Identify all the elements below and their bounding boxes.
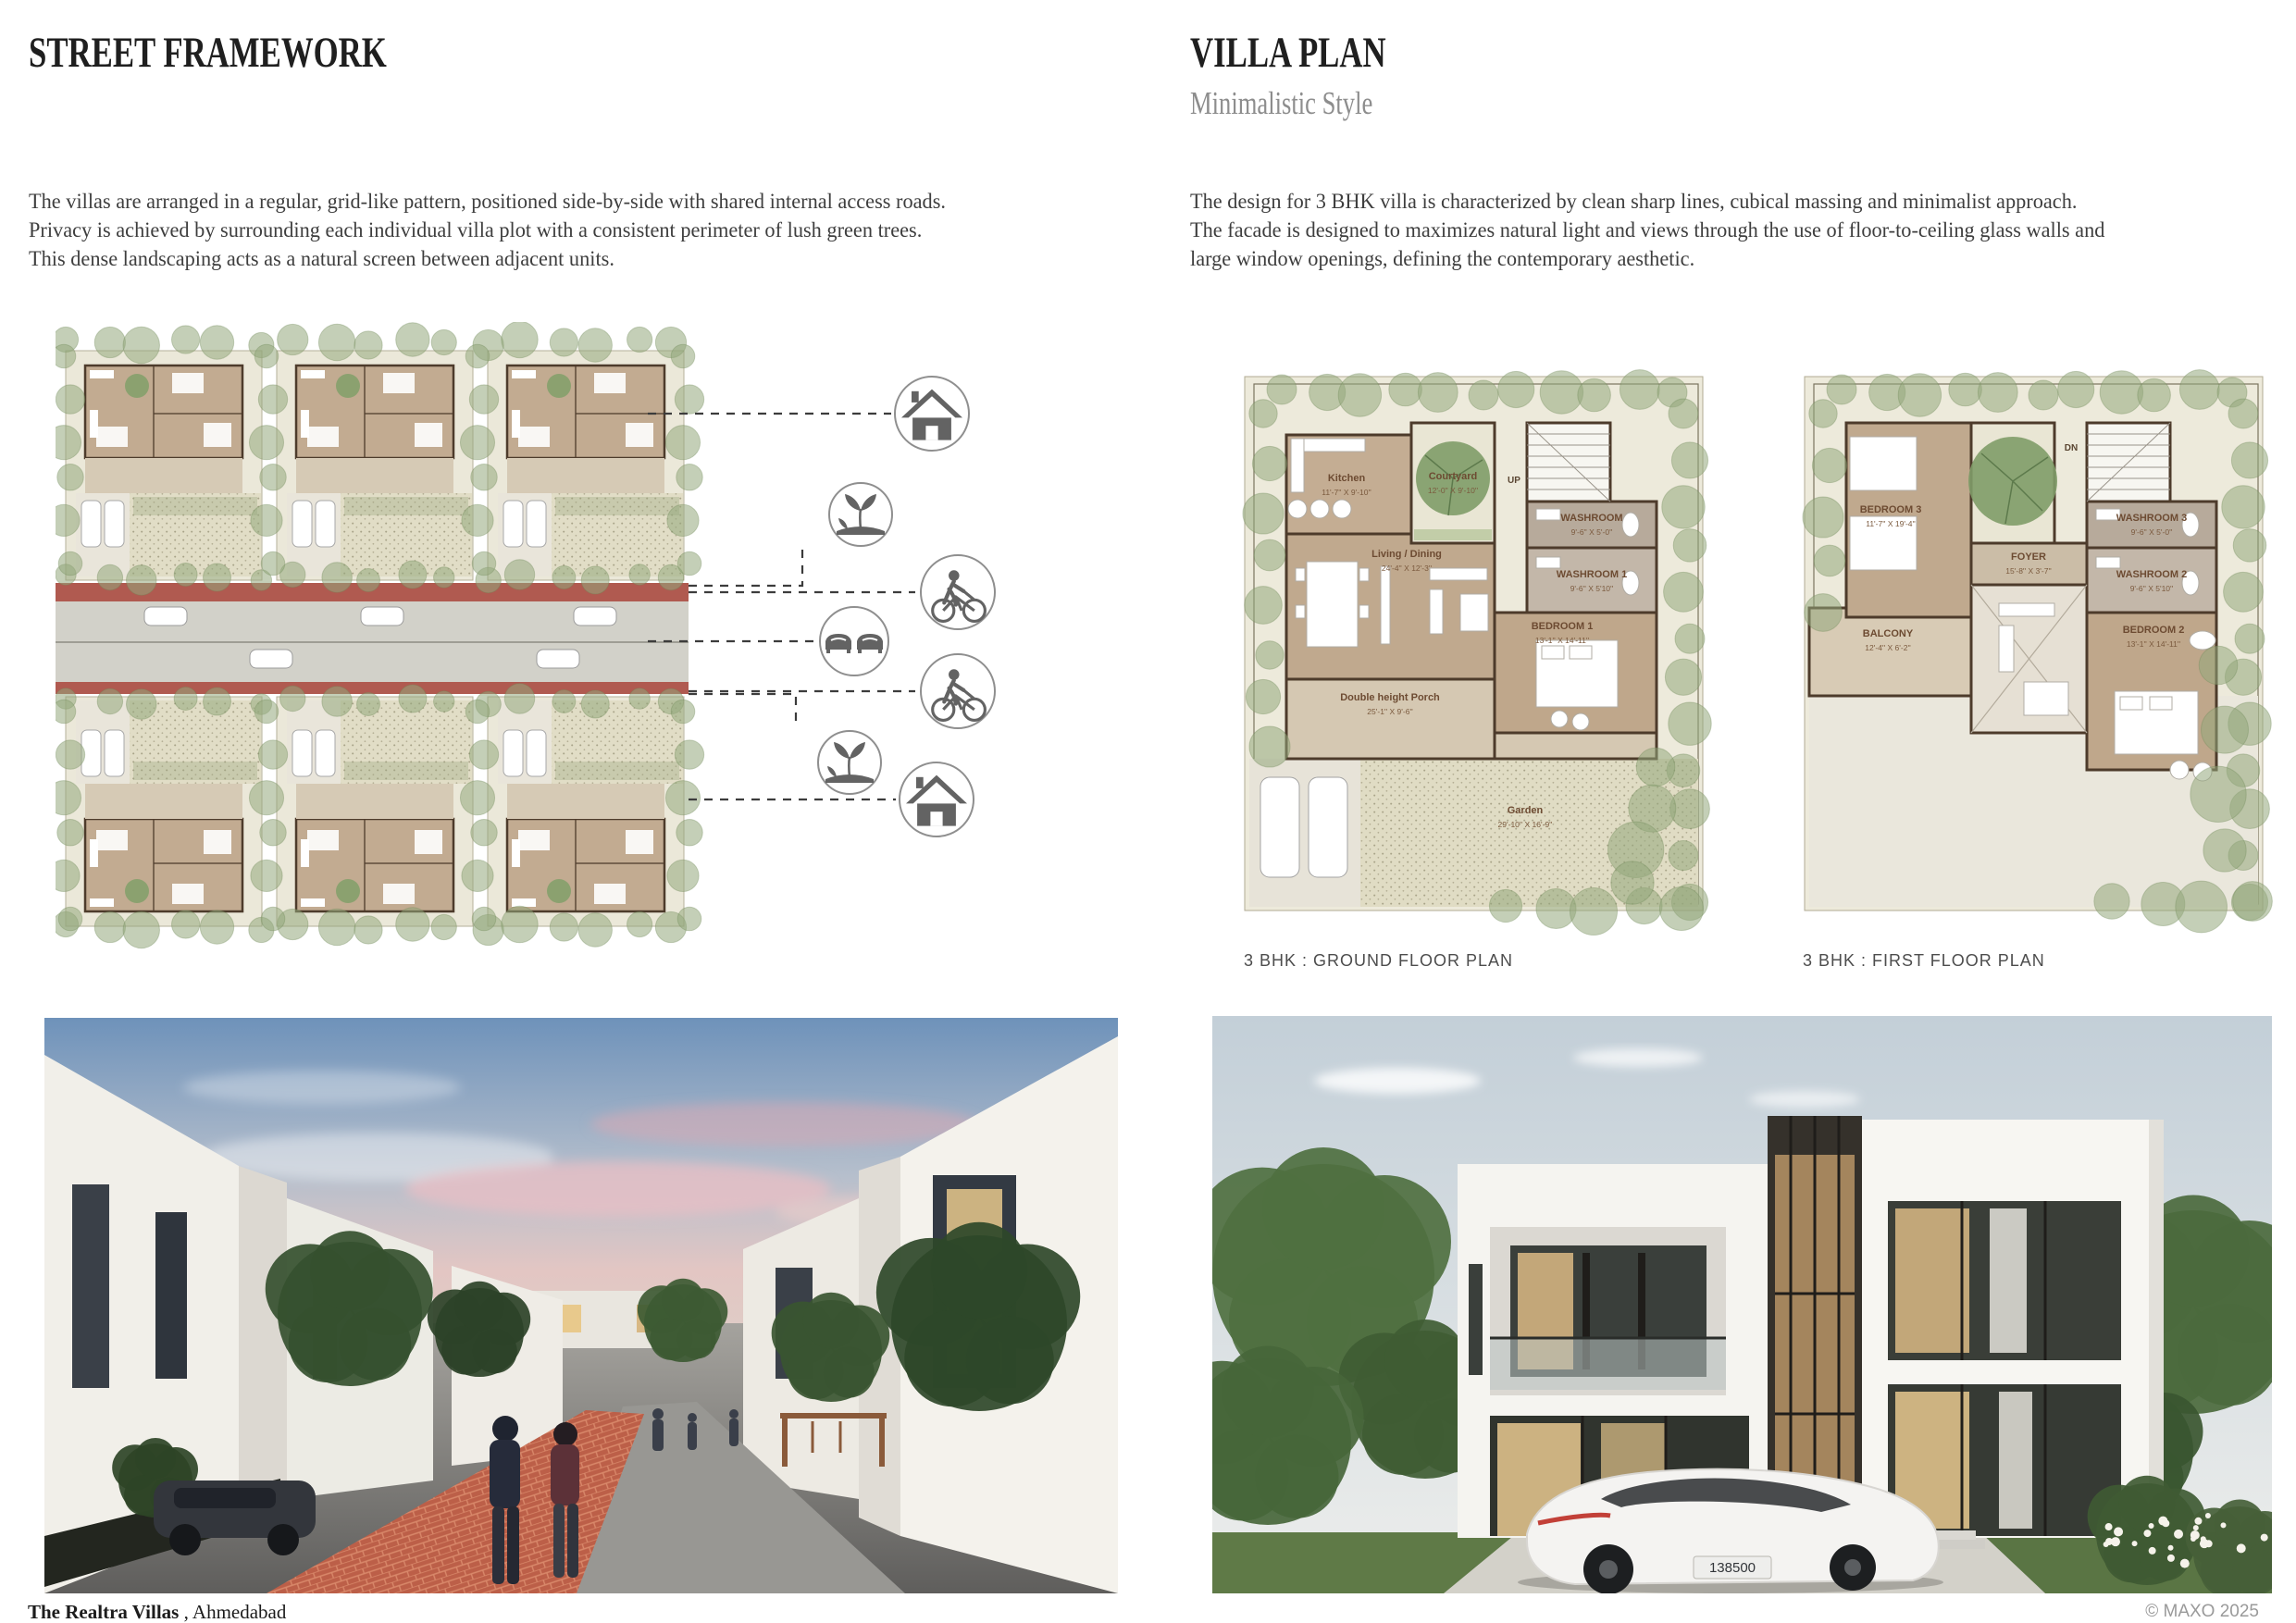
svg-text:9'-6'' X 5'10'': 9'-6'' X 5'10'' [1570, 584, 1614, 593]
svg-text:13'-1'' X 14'-11'': 13'-1'' X 14'-11'' [2127, 639, 2181, 649]
room-label: Courtyard [1429, 471, 1478, 482]
pedestrian-bicycle-icon [921, 654, 995, 728]
left-paragraph: The villas are arranged in a regular, gr… [29, 188, 946, 274]
internal-access-road [56, 583, 689, 694]
foyer [1971, 543, 2087, 585]
room-label: Double height Porch [1340, 692, 1440, 703]
legend-icons [818, 377, 995, 836]
first-plan-caption: 3 BHK : FIRST FLOOR PLAN [1803, 951, 2045, 971]
svg-text:11'-7'' X 9'-10'': 11'-7'' X 9'-10'' [1322, 488, 1371, 497]
room-label: WASHROOM 2 [2116, 569, 2187, 580]
right-paragraph: The design for 3 BHK villa is characteri… [1190, 188, 2104, 274]
svg-text:12'-0'' X 9'-10'': 12'-0'' X 9'-10'' [1428, 486, 1479, 495]
house-icon [900, 762, 974, 836]
plant-icon [818, 731, 881, 794]
svg-text:11'-7'' X 19'-4'': 11'-7'' X 19'-4'' [1866, 519, 1916, 528]
presentation-board: STREET FRAMEWORK The villas are arranged… [0, 0, 2296, 1623]
svg-text:9'-6'' X 5'10'': 9'-6'' X 5'10'' [2130, 584, 2174, 593]
two-cars-icon [820, 607, 888, 675]
ground-floor-plan: Kitchen 11'-7'' X 9'-10'' Courtyard 12'-… [1231, 335, 1721, 941]
project-caption: The Realtra Villas , Ahmedabad [28, 1601, 286, 1623]
first-floor-plan: BEDROOM 3 11'-7'' X 19'-4'' FOYER 15'-8'… [1791, 335, 2281, 941]
room-label: Living / Dining [1371, 549, 1442, 560]
stair-label: UP [1508, 476, 1520, 486]
svg-text:29'-10'' X 16'-9'': 29'-10'' X 16'-9'' [1498, 820, 1553, 829]
svg-text:9'-6'' X 5'-0'': 9'-6'' X 5'-0'' [1571, 527, 1613, 537]
copyright: © MAXO 2025 [2145, 1602, 2259, 1622]
room-label: FOYER [2011, 551, 2046, 563]
plant-icon [829, 483, 892, 546]
pedestrian-bicycle-icon [921, 555, 995, 629]
porch [1286, 679, 1495, 759]
room-label: BEDROOM 3 [1860, 504, 1922, 515]
svg-text:12'-4'' X 6'-2'': 12'-4'' X 6'-2'' [1865, 643, 1911, 652]
room-label: BALCONY [1863, 628, 1914, 639]
room-label: WASHROOM 3 [2116, 513, 2187, 524]
svg-text:9'-6'' X 5'-0'': 9'-6'' X 5'-0'' [2131, 527, 2173, 537]
svg-text:25'-1'' X 9'-6'': 25'-1'' X 9'-6'' [1367, 707, 1413, 716]
room-label: BEDROOM 2 [2123, 625, 2185, 636]
house-icon [895, 377, 969, 451]
svg-text:15'-8'' X 3'-7'': 15'-8'' X 3'-7'' [2005, 566, 2052, 576]
ground-plan-caption: 3 BHK : GROUND FLOOR PLAN [1244, 951, 1513, 971]
villa-render-photo: 138500 [1212, 1016, 2272, 1593]
project-name: The Realtra Villas [28, 1601, 179, 1623]
svg-text:24'-4'' X 12'-3'': 24'-4'' X 12'-3'' [1382, 564, 1433, 573]
stair-label: DN [2065, 443, 2078, 453]
room-label: WASHROOM 1 [1557, 569, 1627, 580]
left-title: STREET FRAMEWORK [29, 28, 513, 78]
room-label: BEDROOM 1 [1532, 621, 1594, 632]
license-plate: 138500 [1709, 1560, 1756, 1576]
right-title: VILLA PLAN [1190, 28, 1455, 78]
street-render-photo [44, 1018, 1118, 1593]
street-framework-diagram [56, 322, 1083, 960]
right-subtitle: Minimalistic Style [1190, 85, 1431, 122]
room-label: Garden [1508, 805, 1544, 816]
svg-text:13'-1'' X 14'-11'': 13'-1'' X 14'-11'' [1535, 636, 1590, 645]
room-label: WASHROOM [1560, 513, 1622, 524]
room-label: Kitchen [1328, 473, 1366, 484]
